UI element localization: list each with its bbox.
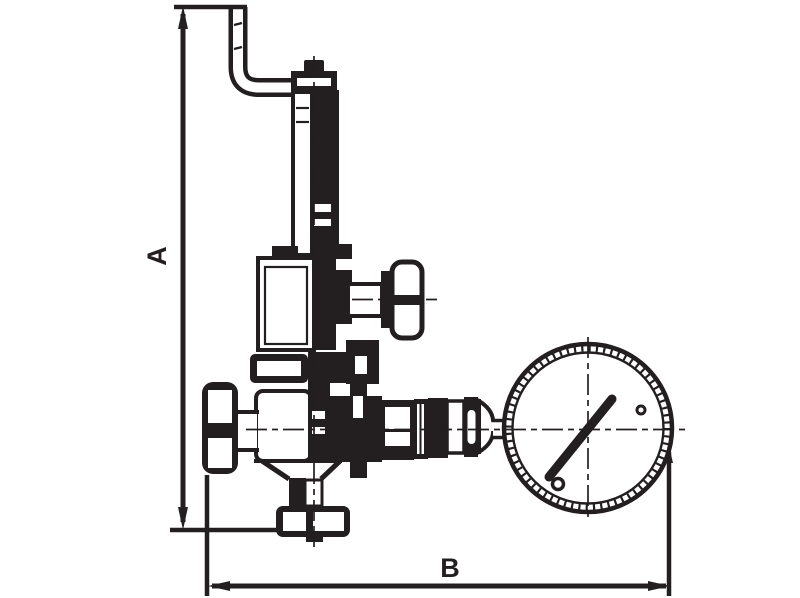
hex-window (313, 512, 344, 531)
housing-step (316, 244, 352, 259)
flange-window (257, 361, 301, 376)
dimension-b-label: B (440, 553, 460, 583)
housing-right-wall (314, 258, 336, 350)
needle-hub (553, 479, 564, 490)
coupling-slit (417, 404, 420, 454)
body-block-slot (355, 356, 367, 374)
dial-screw (637, 406, 645, 414)
dimension-a-label: A (142, 246, 172, 266)
wheel-window (208, 390, 232, 423)
wheel-stem-fill (238, 414, 257, 448)
bell-curve (479, 401, 493, 420)
spring-housing (258, 244, 352, 350)
shutoff-handwheel (202, 382, 257, 474)
body-barrel (256, 391, 311, 461)
spindle-slot (314, 204, 331, 212)
inlet-taper (262, 461, 289, 479)
union-window (385, 407, 410, 429)
arrowhead-right (648, 581, 670, 591)
arrowhead-left (208, 581, 230, 591)
valve-assembly (202, 7, 672, 542)
wheel-window (208, 438, 232, 468)
gauge-cock-slot (468, 410, 476, 444)
spring-bonnet-column (293, 92, 337, 255)
body-right-column (308, 383, 330, 462)
housing-shell (258, 258, 314, 350)
valve-dimension-drawing: A B (0, 0, 800, 598)
drawing-canvas: A B (0, 0, 800, 598)
inlet-neck (289, 478, 306, 508)
bell-curve (479, 433, 493, 452)
gauge-union-fittings (330, 383, 507, 478)
coupling-window (447, 401, 464, 453)
union-window (385, 432, 410, 446)
outlet-slot (353, 396, 363, 418)
coupling-block (428, 398, 448, 458)
hex-window (283, 512, 306, 531)
arrowhead-up (178, 6, 188, 29)
spindle-slot (314, 219, 331, 226)
arrowhead-down (178, 507, 188, 530)
inlet-taper (321, 461, 340, 479)
